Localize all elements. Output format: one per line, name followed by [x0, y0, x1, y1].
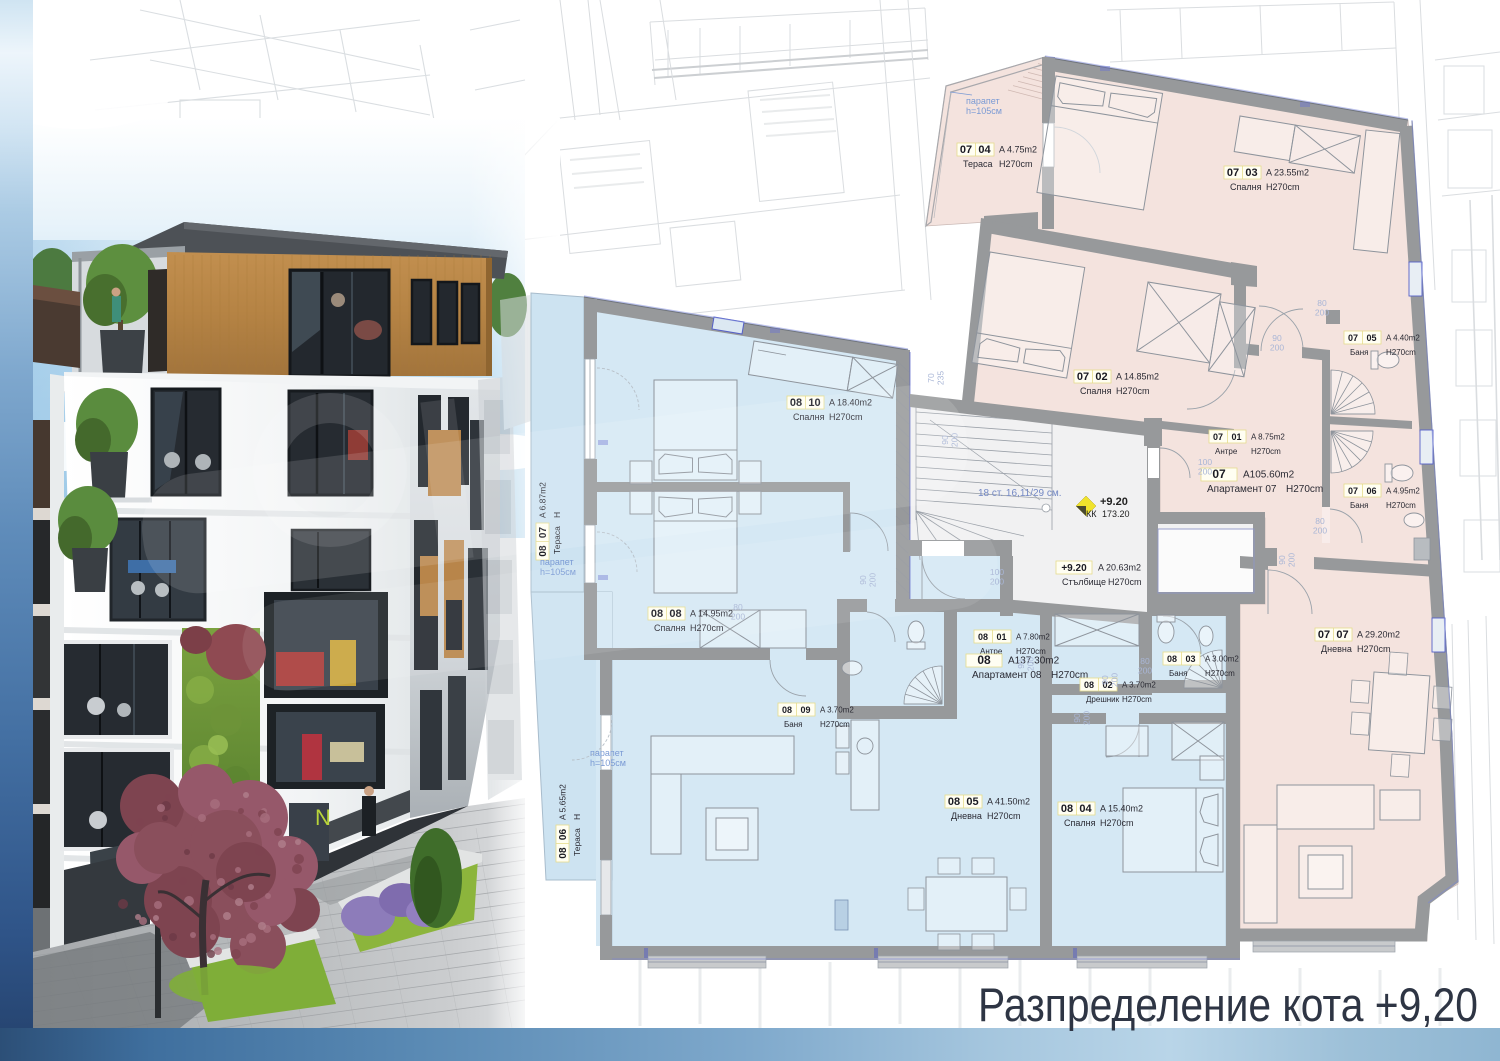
svg-text:80: 80 [1315, 516, 1325, 526]
svg-text:200: 200 [1082, 711, 1092, 725]
svg-text:173.20: 173.20 [1102, 509, 1130, 519]
svg-text:06: 06 [558, 829, 569, 841]
svg-text:Дневна: Дневна [1321, 644, 1352, 654]
svg-text:H270cm: H270cm [999, 159, 1033, 169]
svg-text:200: 200 [1026, 657, 1036, 671]
svg-text:A 4.95m2: A 4.95m2 [1386, 487, 1420, 496]
svg-text:200: 200 [1270, 343, 1284, 353]
svg-text:H270cm: H270cm [1251, 447, 1281, 456]
svg-text:A 5.65m2: A 5.65m2 [558, 784, 568, 820]
svg-text:Апартамент 07: Апартамент 07 [1207, 484, 1277, 495]
svg-text:N: N [315, 805, 331, 830]
svg-text:80: 80 [1317, 298, 1327, 308]
svg-text:90: 90 [1100, 675, 1110, 685]
svg-text:КК: КК [1086, 509, 1097, 519]
svg-text:03: 03 [1185, 654, 1195, 664]
svg-text:09: 09 [800, 705, 810, 715]
svg-text:A 8.75m2: A 8.75m2 [1251, 433, 1285, 442]
svg-text:Спалня: Спалня [1230, 182, 1262, 192]
svg-text:Спалня: Спалня [1080, 386, 1112, 396]
svg-text:H270cm: H270cm [1266, 182, 1300, 192]
svg-text:80: 80 [1140, 656, 1150, 666]
svg-text:парапет: парапет [590, 748, 624, 758]
svg-text:01: 01 [1231, 432, 1241, 442]
svg-text:Стълбище: Стълбище [1062, 577, 1106, 587]
svg-text:A 4.75m2: A 4.75m2 [999, 145, 1037, 155]
svg-text:07: 07 [1348, 333, 1358, 343]
svg-text:07: 07 [1318, 629, 1330, 641]
svg-text:100: 100 [1198, 457, 1212, 467]
svg-text:A 15.40m2: A 15.40m2 [1100, 804, 1143, 814]
svg-text:h=105см: h=105см [966, 106, 1002, 116]
svg-text:18 ст. 16,11/29 см.: 18 ст. 16,11/29 см. [978, 488, 1062, 499]
svg-text:H270cm: H270cm [1286, 484, 1323, 495]
svg-text:06: 06 [1366, 486, 1376, 496]
svg-text:200: 200 [1287, 553, 1297, 567]
svg-text:H270cm: H270cm [1386, 501, 1416, 510]
svg-text:04: 04 [978, 144, 991, 156]
svg-text:A 29.20m2: A 29.20m2 [1357, 630, 1400, 640]
svg-text:H270cm: H270cm [1205, 669, 1235, 678]
svg-text:A 3.00m2: A 3.00m2 [1205, 655, 1239, 664]
svg-text:03: 03 [1245, 167, 1257, 179]
svg-text:Антре: Антре [1215, 447, 1238, 456]
svg-text:90: 90 [1016, 659, 1026, 669]
svg-text:H270cm: H270cm [1386, 348, 1416, 357]
svg-text:07: 07 [1213, 432, 1223, 442]
svg-text:01: 01 [996, 632, 1006, 642]
svg-text:A105.60m2: A105.60m2 [1243, 470, 1295, 481]
svg-text:200: 200 [1315, 308, 1329, 318]
svg-text:08: 08 [558, 847, 569, 859]
svg-text:08: 08 [977, 653, 991, 667]
svg-text:235: 235 [936, 371, 946, 385]
svg-text:Дрешник: Дрешник [1086, 695, 1120, 704]
svg-text:A 14.85m2: A 14.85m2 [1116, 372, 1159, 382]
svg-text:Баня: Баня [1350, 348, 1368, 357]
svg-text:02: 02 [1095, 371, 1107, 383]
svg-text:Баня: Баня [784, 720, 802, 729]
svg-text:07: 07 [1336, 629, 1348, 641]
svg-text:парапет: парапет [966, 96, 1000, 106]
svg-text:H270cm: H270cm [1357, 644, 1391, 654]
svg-text:H270cm: H270cm [1108, 577, 1142, 587]
svg-text:70: 70 [926, 373, 936, 383]
svg-text:H270cm: H270cm [820, 720, 850, 729]
svg-text:+9.20: +9.20 [1061, 563, 1087, 574]
svg-text:07: 07 [1348, 486, 1358, 496]
svg-text:Тераса: Тераса [572, 828, 582, 856]
svg-text:H270cm: H270cm [1116, 386, 1150, 396]
svg-text:90: 90 [1277, 555, 1287, 565]
svg-text:200: 200 [1313, 526, 1327, 536]
svg-text:H270cm: H270cm [1100, 818, 1134, 828]
svg-text:A 41.50m2: A 41.50m2 [987, 797, 1030, 807]
svg-text:Разпределение кота +9,20: Разпределение кота +9,20 [978, 978, 1478, 1031]
svg-text:08: 08 [978, 632, 988, 642]
svg-text:08: 08 [1084, 680, 1094, 690]
svg-text:08: 08 [948, 796, 960, 808]
svg-text:H: H [572, 814, 582, 820]
svg-text:200: 200 [1138, 666, 1152, 676]
svg-text:200: 200 [1198, 467, 1212, 477]
svg-text:A 7.80m2: A 7.80m2 [1016, 633, 1050, 642]
svg-text:A 4.40m2: A 4.40m2 [1386, 334, 1420, 343]
svg-text:08: 08 [782, 705, 792, 715]
svg-text:h=105см: h=105см [590, 758, 626, 768]
svg-text:Спалня: Спалня [1064, 818, 1096, 828]
svg-text:H270cm: H270cm [1122, 695, 1152, 704]
svg-text:+9.20: +9.20 [1100, 496, 1128, 508]
svg-text:08: 08 [1167, 654, 1177, 664]
svg-text:08: 08 [1061, 803, 1073, 815]
svg-text:05: 05 [1366, 333, 1376, 343]
svg-text:A 3.70m2: A 3.70m2 [820, 706, 854, 715]
svg-text:04: 04 [1079, 803, 1092, 815]
svg-text:07: 07 [1227, 167, 1239, 179]
svg-text:парапет: парапет [540, 557, 574, 567]
svg-text:Баня: Баня [1350, 501, 1368, 510]
svg-text:90: 90 [1072, 713, 1082, 723]
svg-text:07: 07 [960, 144, 972, 156]
svg-text:05: 05 [966, 796, 978, 808]
svg-text:200: 200 [1110, 673, 1120, 687]
svg-text:90: 90 [1272, 333, 1282, 343]
svg-text:07: 07 [1212, 467, 1226, 481]
svg-text:H270cm: H270cm [987, 811, 1021, 821]
svg-text:A 3.70m2: A 3.70m2 [1122, 681, 1156, 690]
svg-text:A 20.63m2: A 20.63m2 [1098, 563, 1141, 573]
svg-text:Баня: Баня [1169, 669, 1187, 678]
svg-text:A 23.55m2: A 23.55m2 [1266, 168, 1309, 178]
svg-text:Дневна: Дневна [951, 811, 982, 821]
svg-text:07: 07 [1077, 371, 1089, 383]
svg-text:Тераса: Тераса [963, 159, 993, 169]
